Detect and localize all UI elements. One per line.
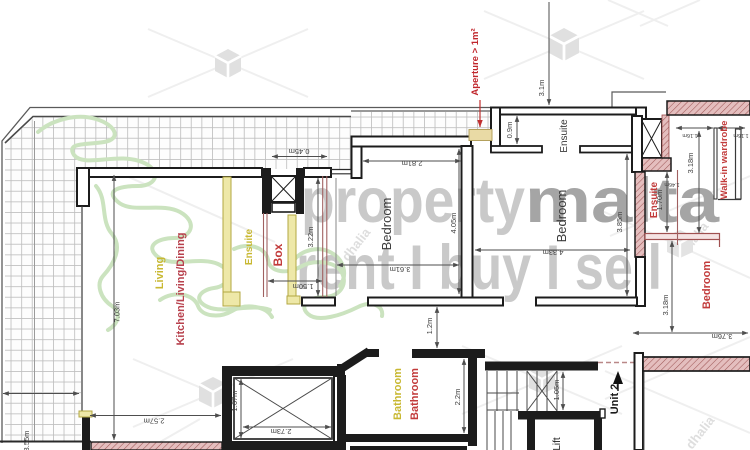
svg-text:3.55m: 3.55m bbox=[22, 431, 31, 450]
svg-text:3.61m: 3.61m bbox=[390, 265, 411, 274]
svg-text:7.03m: 7.03m bbox=[113, 302, 122, 323]
svg-text:Bedroom: Bedroom bbox=[554, 190, 569, 243]
svg-text:Living: Living bbox=[154, 257, 166, 289]
svg-text:2.73m: 2.73m bbox=[271, 427, 292, 436]
svg-text:Bedroom: Bedroom bbox=[379, 198, 394, 251]
svg-text:Walk-in wardrobe: Walk-in wardrobe bbox=[719, 121, 730, 200]
svg-text:3.1m: 3.1m bbox=[537, 80, 546, 97]
svg-text:Box: Box bbox=[271, 243, 285, 266]
svg-text:0.9m: 0.9m bbox=[505, 122, 514, 139]
svg-text:1.50m: 1.50m bbox=[293, 282, 314, 291]
svg-text:rent I buy I sell: rent I buy I sell bbox=[296, 233, 662, 303]
svg-text:0.45m: 0.45m bbox=[289, 147, 310, 156]
svg-text:1.16m: 1.16m bbox=[682, 132, 698, 138]
svg-text:3.18m: 3.18m bbox=[661, 295, 670, 316]
svg-text:Ensuite: Ensuite bbox=[244, 229, 255, 266]
svg-text:Ensuite: Ensuite bbox=[649, 182, 660, 219]
svg-text:Unit 2: Unit 2 bbox=[609, 384, 621, 415]
svg-text:Bathroom: Bathroom bbox=[409, 368, 421, 420]
svg-text:Bathroom: Bathroom bbox=[392, 368, 404, 420]
svg-text:2.2m: 2.2m bbox=[453, 389, 462, 406]
svg-text:Ensuite: Ensuite bbox=[559, 119, 570, 153]
svg-text:Kitchen/Living/Dining: Kitchen/Living/Dining bbox=[175, 232, 187, 345]
svg-text:3.22m: 3.22m bbox=[306, 227, 315, 248]
svg-text:Bedroom: Bedroom bbox=[701, 261, 713, 310]
svg-text:1.2m: 1.2m bbox=[425, 318, 434, 335]
svg-text:4.33m: 4.33m bbox=[543, 248, 564, 257]
svg-text:property: property bbox=[301, 166, 525, 236]
svg-text:Aperture > 1m²: Aperture > 1m² bbox=[470, 28, 481, 95]
svg-text:Lift: Lift bbox=[552, 437, 563, 450]
svg-text:2.81m: 2.81m bbox=[402, 159, 423, 168]
svg-text:1.16m: 1.16m bbox=[733, 132, 749, 138]
svg-text:4.05m: 4.05m bbox=[449, 213, 458, 234]
svg-text:3.76m: 3.76m bbox=[712, 332, 733, 341]
svg-text:2.57m: 2.57m bbox=[144, 417, 165, 426]
svg-text:3.85m: 3.85m bbox=[615, 212, 624, 233]
svg-text:1.46m: 1.46m bbox=[664, 181, 680, 187]
svg-text:1.67m: 1.67m bbox=[230, 391, 239, 412]
svg-text:1.05m: 1.05m bbox=[552, 380, 561, 401]
svg-text:3.18m: 3.18m bbox=[686, 153, 695, 174]
